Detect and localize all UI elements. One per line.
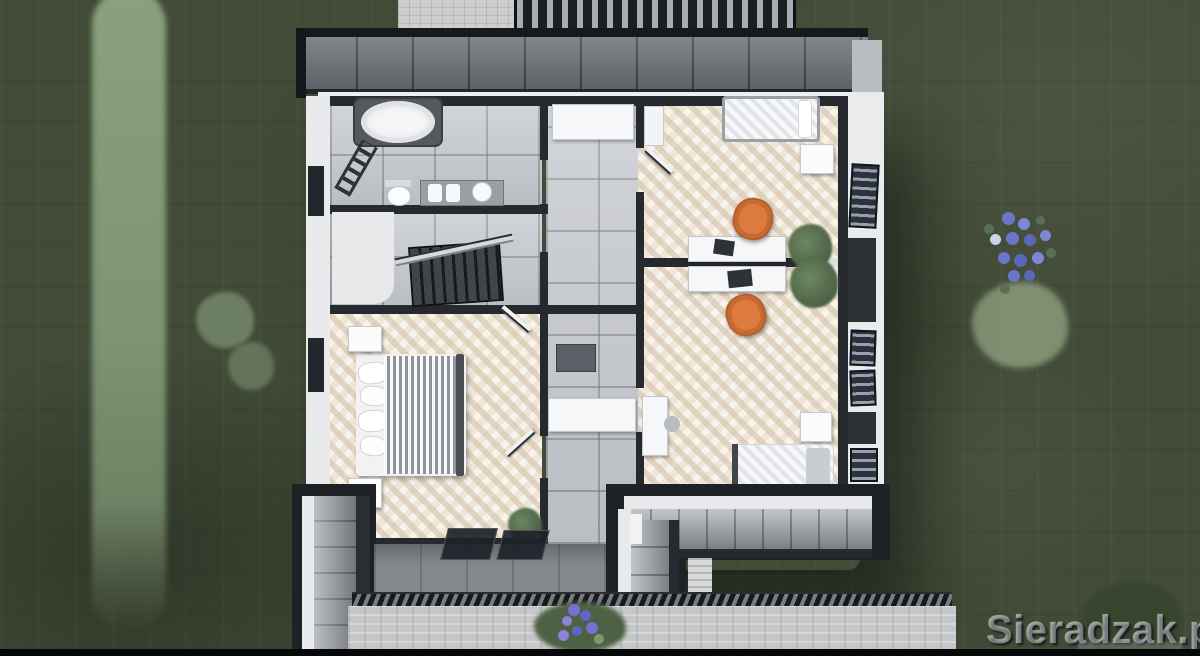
striped-duvet (384, 356, 456, 474)
left-wall-window (308, 166, 324, 216)
flower (568, 604, 580, 616)
laptop (727, 269, 753, 288)
roof-chimney (630, 514, 642, 544)
flower (562, 616, 572, 626)
glass-canopy-panel (440, 528, 498, 560)
blue-flower-patch-bottom (534, 596, 626, 654)
flower (580, 610, 591, 621)
wall-left-corridor (540, 252, 548, 436)
flower (1002, 212, 1015, 225)
right-wall-window (850, 448, 878, 482)
round-basin (472, 182, 492, 202)
flower (1008, 270, 1020, 282)
inner-right-wall-face (838, 96, 848, 488)
stairwell-wall (332, 212, 394, 304)
flower (1018, 218, 1030, 230)
flower (1024, 270, 1035, 281)
right-wall-window (848, 163, 879, 228)
leaf (1046, 248, 1056, 258)
wall-shelf (644, 106, 664, 146)
gable-side (852, 40, 882, 94)
right-wall-window (849, 330, 876, 367)
flower (586, 622, 598, 634)
wall-corridor-right-rooms (636, 104, 644, 148)
bottom-letterbox-bar (0, 649, 1200, 656)
left-exterior-wall (306, 96, 332, 504)
hedge-row (92, 0, 166, 632)
wall-bath-corridor (540, 104, 548, 160)
leaf (594, 634, 604, 644)
bed-pillow (798, 100, 812, 138)
right-wall-roof-panel (846, 238, 876, 322)
flower (558, 630, 569, 641)
left-wing-fascia (302, 496, 314, 656)
flower (1014, 254, 1027, 267)
aerial-floor-plan-render: Sieradzak.pl (0, 0, 1200, 656)
plant (790, 258, 838, 308)
leaf (984, 224, 994, 234)
leaf (1000, 284, 1010, 294)
vanity-sink (446, 184, 460, 202)
left-wall-window (308, 338, 324, 392)
shrub (228, 342, 274, 390)
flower (572, 626, 582, 636)
flower (1040, 230, 1051, 241)
right-wall-window (849, 370, 876, 407)
vanity-sink (428, 184, 442, 202)
right-wall-roof-panel (846, 412, 876, 444)
bathtub (361, 101, 435, 143)
toilet (387, 186, 411, 206)
corridor-cabinet (552, 104, 634, 140)
wall-stairs-bedroom (330, 305, 644, 314)
flower (998, 252, 1010, 264)
leaf (1036, 216, 1045, 225)
blue-flower-patch-right (984, 208, 1068, 304)
right-wing-fascia (624, 496, 872, 509)
glass-canopy-panel (496, 530, 549, 560)
flower (1032, 252, 1044, 264)
flower (990, 234, 1001, 245)
wall-corridor-right-rooms (636, 192, 644, 388)
flower (1024, 234, 1036, 246)
roof-top-eave (302, 28, 868, 94)
side-chair (664, 416, 680, 432)
corridor-dresser (556, 344, 596, 372)
nightstand (348, 326, 382, 352)
paver-walkway (348, 606, 956, 652)
nightstand (800, 144, 834, 174)
laptop (713, 239, 735, 257)
desk (688, 236, 786, 262)
corridor-wardrobe (548, 398, 636, 432)
nightstand (800, 412, 832, 442)
shrub (196, 292, 254, 348)
flower (1006, 232, 1019, 245)
roof-left-fascia (296, 28, 306, 98)
bed-pillow (806, 448, 830, 486)
corridor-floor (546, 104, 638, 544)
bed-footboard (456, 354, 464, 476)
